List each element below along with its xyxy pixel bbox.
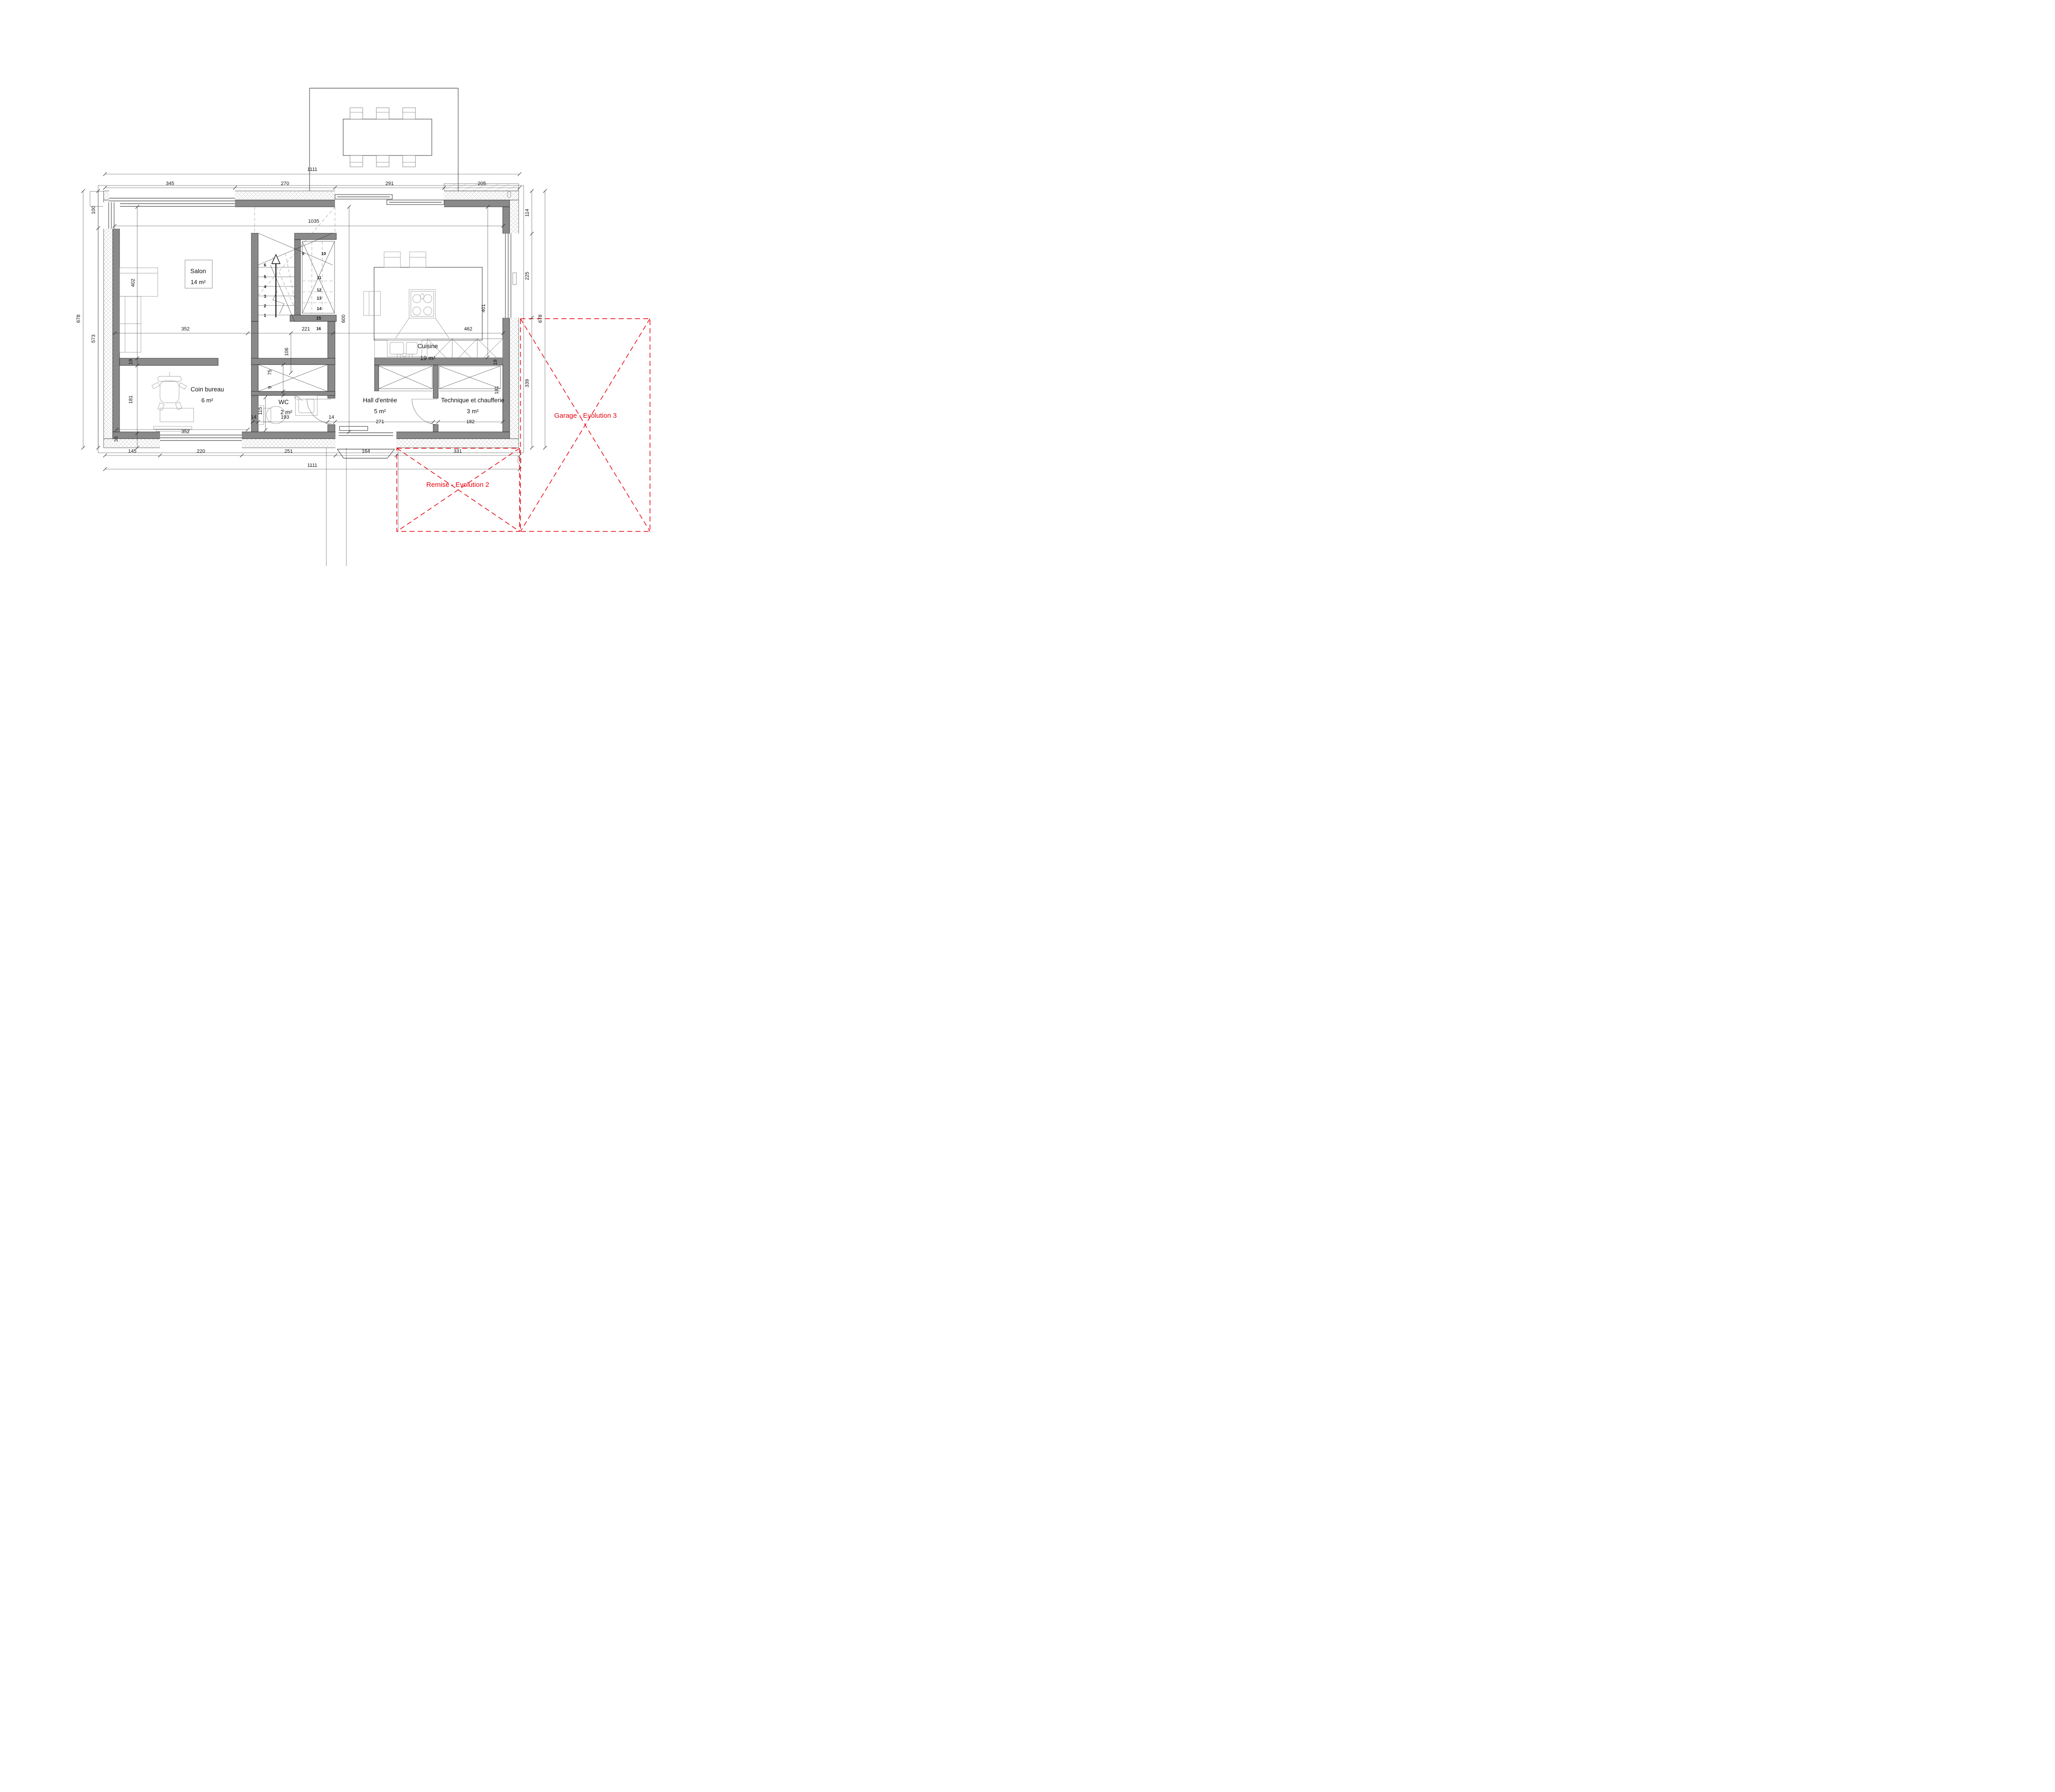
room-area-salon: 14 m² bbox=[190, 279, 206, 285]
dimension-label: 573 bbox=[91, 335, 96, 343]
room-area-bureau: 6 m² bbox=[201, 397, 214, 404]
dimension-label: 9 bbox=[267, 386, 273, 389]
stair-step-number: 4 bbox=[264, 285, 266, 290]
dimension-label: 291 bbox=[385, 181, 394, 186]
cooktop bbox=[395, 290, 449, 338]
dimension-label: 339 bbox=[525, 379, 530, 387]
dimension-label: 1035 bbox=[308, 219, 319, 224]
wc-door bbox=[307, 399, 331, 424]
garage-label: Garage - Evolution 3 bbox=[554, 412, 617, 420]
stair-step-number: 3 bbox=[264, 294, 266, 299]
dimension-label: 164 bbox=[362, 449, 370, 454]
technique-wardrobe bbox=[439, 366, 500, 391]
technique-door bbox=[412, 399, 437, 425]
left-window bbox=[103, 202, 120, 229]
dimension-label: 352 bbox=[181, 326, 190, 332]
stair-step-number: 6 bbox=[264, 263, 266, 268]
dimension-label: 115 bbox=[258, 407, 263, 415]
garage-zone bbox=[520, 319, 650, 531]
windows-and-doors bbox=[103, 190, 519, 458]
dimension-label: 221 bbox=[302, 326, 310, 332]
dimension-label: 251 bbox=[285, 449, 293, 454]
bar-stools bbox=[364, 252, 426, 315]
dimension-label: 402 bbox=[130, 279, 136, 287]
stair-step-number: 14 bbox=[317, 306, 322, 311]
dimension-label: 600 bbox=[341, 315, 346, 323]
floor-plan-svg: 123456910111213141516 bbox=[0, 0, 713, 621]
desk bbox=[154, 408, 194, 431]
dining-table bbox=[343, 119, 432, 155]
room-name-cuisine: Cuisine bbox=[417, 343, 438, 350]
dimension-label: 462 bbox=[464, 326, 472, 332]
furniture bbox=[120, 252, 503, 431]
room-area-hall: 5 m² bbox=[374, 408, 386, 415]
dimension-label: 100 bbox=[91, 206, 96, 214]
dimension-label: 1111 bbox=[307, 463, 317, 468]
terrace bbox=[310, 88, 458, 191]
dimension-label: 225 bbox=[525, 272, 530, 280]
dimension-label: 205 bbox=[478, 181, 486, 186]
remise-label: Remise - Evolution 2 bbox=[426, 481, 489, 489]
site-lines bbox=[326, 192, 521, 566]
cuisine-window bbox=[502, 234, 519, 318]
dimension-label: 331 bbox=[454, 449, 462, 454]
dimension-label: 352 bbox=[181, 429, 190, 435]
dimension-label: 401 bbox=[481, 304, 486, 312]
sliding-door bbox=[335, 190, 444, 207]
dimension-label: 345 bbox=[166, 181, 174, 186]
dimension-label: 19 bbox=[493, 360, 498, 365]
dimension-label: 38 bbox=[114, 436, 119, 442]
stair-step-number: 11 bbox=[317, 275, 322, 280]
stair-step-number: 15 bbox=[316, 316, 321, 321]
dimension-label: 114 bbox=[525, 209, 530, 217]
dimension-label: 270 bbox=[281, 181, 289, 186]
room-name-technique: Technique et chaufferie bbox=[441, 397, 504, 404]
stair-step-number: 13 bbox=[317, 296, 322, 301]
dimension-label: 181 bbox=[494, 386, 500, 394]
office-chair bbox=[152, 372, 186, 410]
room-name-salon: Salon bbox=[190, 268, 206, 275]
dimension-label: 678 bbox=[538, 315, 543, 323]
dimension-label: 678 bbox=[76, 315, 81, 323]
stair-step-number: 5 bbox=[264, 275, 266, 280]
room-area-wc: 2 m² bbox=[280, 409, 293, 415]
room-area-cuisine: 19 m² bbox=[420, 355, 435, 361]
dimension-label: 75 bbox=[267, 370, 273, 375]
sofa bbox=[120, 268, 158, 352]
room-area-technique: 3 m² bbox=[467, 408, 479, 415]
dimension-lines bbox=[81, 172, 547, 471]
dimension-label: 106 bbox=[284, 348, 290, 356]
room-name-wc: WC bbox=[279, 399, 289, 405]
stair-step-number: 10 bbox=[321, 251, 326, 256]
dimension-label: 181 bbox=[128, 395, 134, 404]
dimension-label: 14 bbox=[329, 415, 334, 420]
dimension-label: 220 bbox=[197, 449, 205, 454]
stair-step-number: 12 bbox=[317, 288, 322, 293]
hall-wardrobe bbox=[379, 366, 432, 391]
washbasin bbox=[294, 395, 317, 415]
room-name-hall: Hall d'entrée bbox=[363, 397, 397, 404]
dimension-label: 14 bbox=[251, 415, 256, 420]
dimension-label: 145 bbox=[128, 449, 136, 454]
room-name-bureau: Coin bureau bbox=[190, 386, 224, 393]
dimension-label: 1111 bbox=[307, 167, 317, 172]
stair-step-number: 1 bbox=[264, 313, 266, 318]
stair-step-number: 2 bbox=[264, 304, 266, 309]
dimension-label: 182 bbox=[466, 419, 475, 425]
room-labels: Salon 14 m² Cuisine 19 m² Coin bureau 6 … bbox=[190, 268, 505, 415]
stair-step-number: 16 bbox=[316, 326, 321, 331]
remise-zone bbox=[397, 448, 520, 531]
stair-step-number: 9 bbox=[302, 251, 304, 256]
bureau-window bbox=[160, 431, 242, 448]
salon-window bbox=[109, 190, 235, 207]
dimension-label: 271 bbox=[376, 419, 384, 425]
floor-plan-page: 123456910111213141516 bbox=[0, 0, 713, 621]
dimension-label: 19 bbox=[128, 359, 134, 365]
dining-chairs bbox=[350, 108, 415, 167]
